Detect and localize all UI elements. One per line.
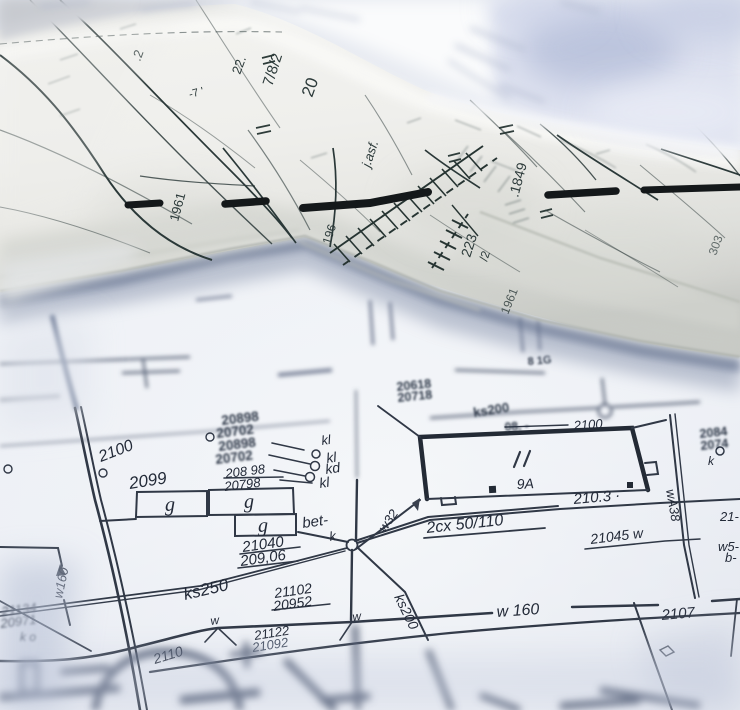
svg-text:8 1G: 8 1G xyxy=(527,354,552,368)
svg-text:bet-: bet- xyxy=(301,512,329,532)
svg-text:2100: 2100 xyxy=(572,416,604,433)
svg-text:08. -: 08. - xyxy=(504,418,529,434)
svg-text:21-: 21- xyxy=(719,509,739,524)
svg-text:w 160: w 160 xyxy=(496,601,540,621)
svg-text:2074: 2074 xyxy=(700,436,729,453)
svg-text:2107: 2107 xyxy=(660,604,696,624)
svg-text:g: g xyxy=(165,494,175,516)
svg-text:b-: b- xyxy=(725,550,737,565)
svg-text:k: k xyxy=(708,454,715,468)
svg-text:9A: 9A xyxy=(516,475,534,492)
svg-text:g: g xyxy=(244,491,254,513)
svg-text:g: g xyxy=(258,515,268,537)
